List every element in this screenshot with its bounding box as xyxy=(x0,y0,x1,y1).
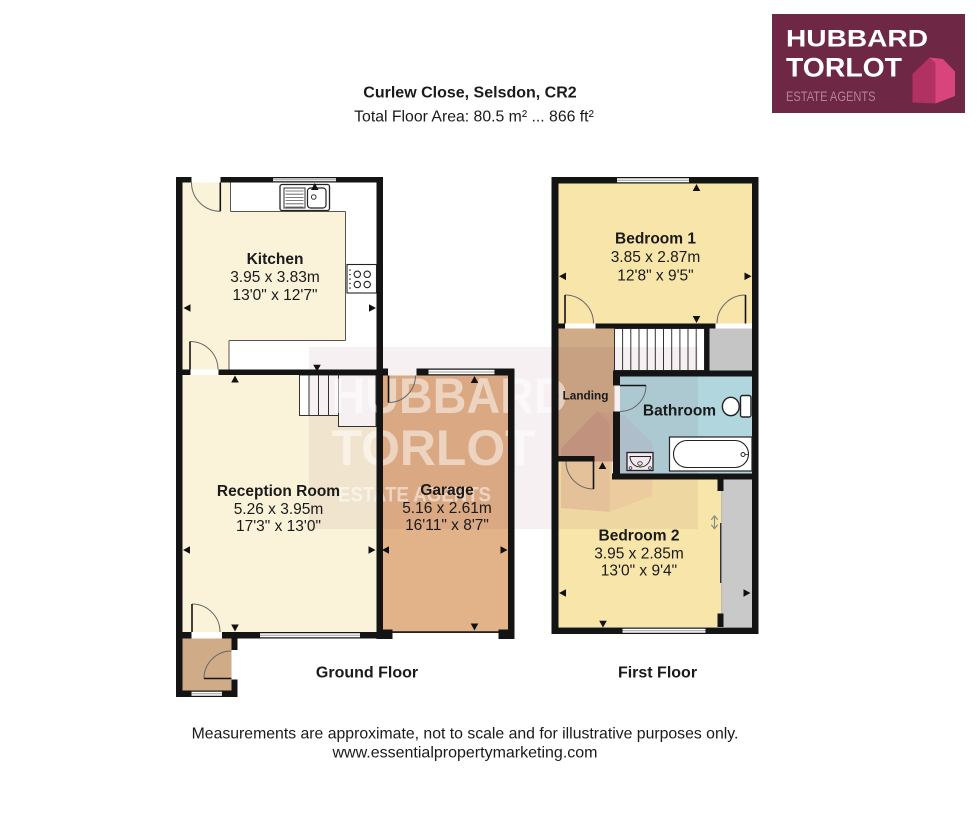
svg-text:HUBBARD: HUBBARD xyxy=(786,26,928,53)
svg-text:17'3" x 13'0": 17'3" x 13'0" xyxy=(236,518,321,535)
svg-text:Curlew Close, Selsdon, CR2: Curlew Close, Selsdon, CR2 xyxy=(363,84,576,101)
svg-text:13'0" x 9'4": 13'0" x 9'4" xyxy=(601,563,677,580)
svg-text:Garage: Garage xyxy=(420,482,474,499)
svg-text:16'11" x 8'7": 16'11" x 8'7" xyxy=(405,517,489,534)
svg-text:5.26 x 3.95m: 5.26 x 3.95m xyxy=(234,501,324,518)
svg-text:3.95 x 2.85m: 3.95 x 2.85m xyxy=(594,546,684,563)
svg-text:13'0" x 12'7": 13'0" x 12'7" xyxy=(232,287,317,304)
svg-text:Reception Room: Reception Room xyxy=(217,483,340,500)
svg-text:Bedroom 2: Bedroom 2 xyxy=(599,528,680,545)
svg-text:Total Floor Area: 80.5 m² ...: Total Floor Area: 80.5 m² ... 866 ft² xyxy=(354,109,594,126)
svg-text:www.essentialpropertymarketing: www.essentialpropertymarketing.com xyxy=(332,745,598,762)
svg-text:Bathroom: Bathroom xyxy=(643,403,716,420)
svg-text:Landing: Landing xyxy=(563,389,609,403)
svg-text:TORLOT: TORLOT xyxy=(332,420,536,476)
svg-text:5.16 x 2.61m: 5.16 x 2.61m xyxy=(402,500,492,517)
svg-text:3.95 x 3.83m: 3.95 x 3.83m xyxy=(230,269,320,286)
svg-text:Measurements are approximate,: Measurements are approximate, not to sca… xyxy=(192,726,739,743)
svg-text:HUBBARD: HUBBARD xyxy=(332,368,568,424)
svg-text:3.85 x 2.87m: 3.85 x 2.87m xyxy=(611,249,701,266)
svg-text:Kitchen: Kitchen xyxy=(247,251,304,268)
svg-text:Bedroom 1: Bedroom 1 xyxy=(615,231,696,248)
svg-text:TORLOT: TORLOT xyxy=(786,53,903,83)
svg-text:12'8" x 9'5": 12'8" x 9'5" xyxy=(617,268,693,285)
svg-text:Ground Floor: Ground Floor xyxy=(316,665,418,682)
svg-text:ESTATE AGENTS: ESTATE AGENTS xyxy=(786,88,876,104)
svg-text:First Floor: First Floor xyxy=(618,665,697,682)
